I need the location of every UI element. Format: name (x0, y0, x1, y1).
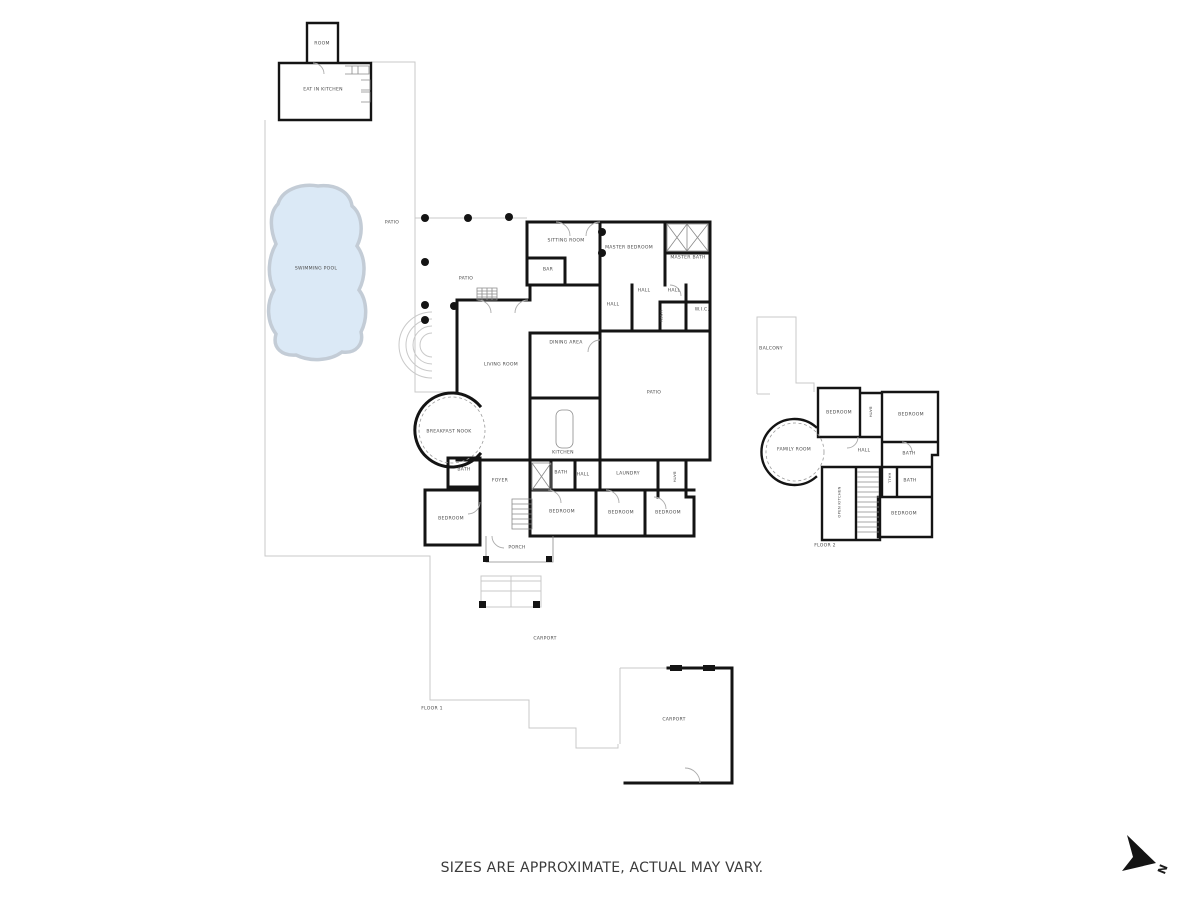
label-floor-2: FLOOR 2 (814, 544, 836, 549)
label-hall-4: HALL (577, 473, 590, 478)
label-f2-bath-2: BATH (902, 452, 915, 457)
label-porch: PORCH (508, 546, 525, 551)
label-master-bath: MASTER BATH (670, 256, 705, 261)
label-dining-area: DINING AREA (549, 341, 582, 346)
label-poolhouse-room: ROOM (314, 42, 329, 47)
label-kitchen: KITCHEN (552, 451, 574, 456)
label-bath-laundry: BATH (673, 471, 678, 482)
label-foyer: FOYER (492, 479, 508, 484)
label-patio-west: PATIO (459, 277, 473, 282)
label-f2-bedroom-3: BEDROOM (891, 512, 917, 517)
label-bath-nook: BATH (457, 468, 470, 473)
label-sitting-room: SITTING ROOM (548, 239, 585, 244)
label-swimming-pool: SWIMMING POOL (295, 267, 337, 272)
label-open-kitchen: OPEN KITCHEN (837, 486, 842, 517)
label-f2-bedroom-2: BEDROOM (898, 413, 924, 418)
label-laundry: LAUNDRY (616, 472, 640, 477)
label-family-room: FAMILY ROOM (777, 448, 811, 453)
label-bedroom-3: BEDROOM (655, 511, 681, 516)
label-poolhouse-eat-in-kitchen: EAT IN KITCHEN (303, 88, 343, 93)
label-bedroom-1: BEDROOM (549, 510, 575, 515)
label-f2-bath-1: BATH (869, 406, 874, 417)
label-balcony: BALCONY (759, 347, 783, 352)
floorplan-page: ROOMEAT IN KITCHENSWIMMING POOLPATIOPATI… (0, 0, 1200, 900)
room-labels-layer: ROOMEAT IN KITCHENSWIMMING POOLPATIOPATI… (0, 0, 1200, 900)
label-f2-hall-2: HALL (888, 473, 893, 484)
label-carport-2: CARPORT (662, 718, 685, 723)
label-bath-hall: BATH (554, 471, 567, 476)
label-hall-3: HALL (607, 303, 620, 308)
label-bedroom-west: BEDROOM (438, 517, 464, 522)
label-breakfast-nook: BREAKFAST NOOK (426, 430, 471, 435)
label-hall-2: HALL (668, 289, 681, 294)
label-f2-bath-3: BATH (903, 479, 916, 484)
label-wic: W.I.C. (695, 308, 709, 313)
label-carport-1: CARPORT (533, 637, 556, 642)
label-linen-closet: LINEN (659, 310, 663, 322)
disclaimer-text: SIZES ARE APPROXIMATE, ACTUAL MAY VARY. (441, 860, 764, 876)
label-patio-upper: PATIO (385, 221, 399, 226)
label-floor-1: FLOOR 1 (421, 707, 443, 712)
label-hall-1: HALL (638, 289, 651, 294)
label-f2-bedroom-1: BEDROOM (826, 411, 852, 416)
label-f2-hall-1: HALL (858, 449, 871, 454)
label-master-bedroom: MASTER BEDROOM (605, 246, 653, 251)
label-bar: BAR (543, 268, 553, 273)
label-bedroom-2: BEDROOM (608, 511, 634, 516)
label-living-room: LIVING ROOM (484, 363, 518, 368)
label-patio-court: PATIO (647, 391, 661, 396)
